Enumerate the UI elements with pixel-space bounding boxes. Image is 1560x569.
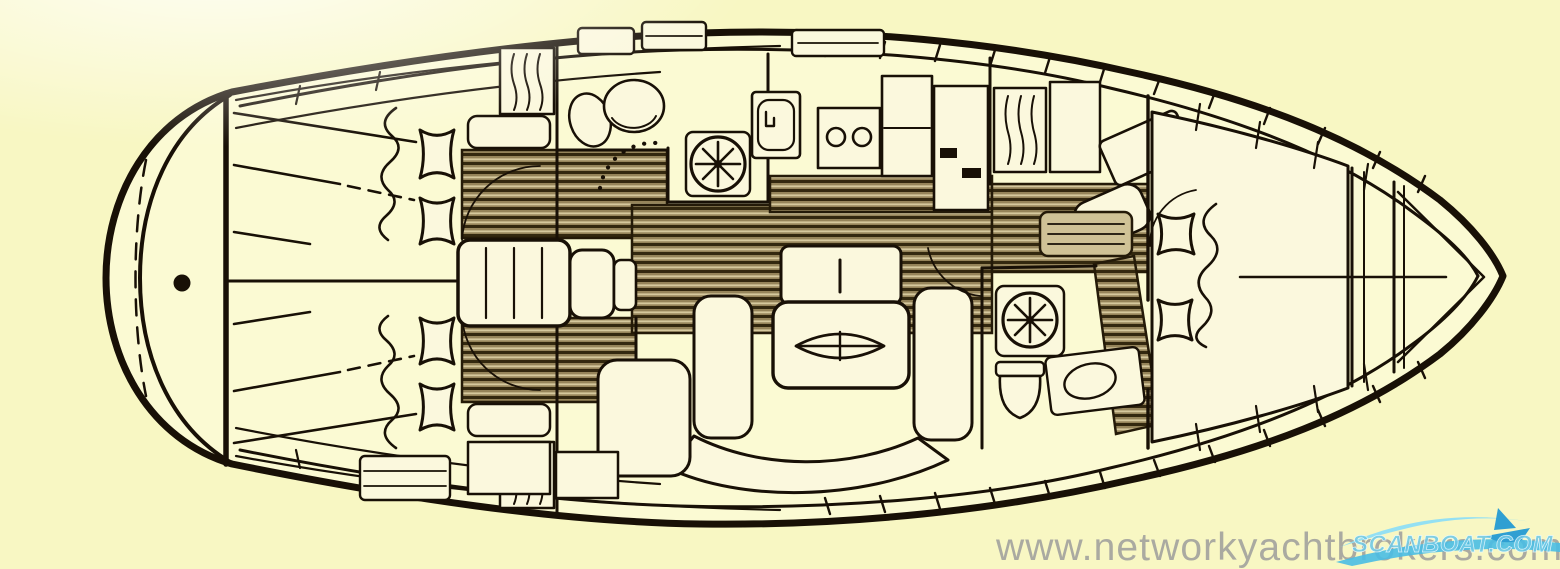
chart-table-top <box>1040 212 1132 256</box>
berth-cushion-icon <box>1158 300 1192 340</box>
shelf <box>468 116 550 148</box>
berth-cushion-icon <box>420 130 454 178</box>
shower-drain-icon <box>686 132 750 196</box>
deck-hatch <box>578 28 634 54</box>
steps-top <box>614 260 636 310</box>
locker-handle <box>962 168 981 178</box>
rudder-post-icon <box>174 275 191 292</box>
settee-port-arm <box>694 296 752 438</box>
stowage-locker <box>468 442 550 494</box>
toilet-icon <box>604 80 664 132</box>
sink-unit <box>752 92 800 158</box>
sink-icon <box>1045 346 1145 415</box>
galley-counter <box>882 76 932 176</box>
berth-cushion-icon <box>420 198 454 244</box>
saloon-table-icon <box>773 246 909 388</box>
steps-mid <box>570 250 614 318</box>
locker-handle <box>940 148 957 158</box>
berth-cushion-icon <box>1158 214 1194 254</box>
stove-burners-icon <box>818 108 880 168</box>
stowage-locker <box>556 452 618 498</box>
yacht-floor-plan: www.networkyachtbrokers.com SCANBOAT.COM <box>0 0 1560 569</box>
scanboat-logo: SCANBOAT.COM <box>1336 508 1560 566</box>
settee-stbd-arm <box>914 288 972 440</box>
shelf <box>468 404 550 436</box>
logo-text: SCANBOAT.COM <box>1352 531 1554 558</box>
aft-deck-box <box>360 456 450 500</box>
companionway-steps <box>458 240 636 326</box>
scanned-yacht-layout-page: www.networkyachtbrokers.com SCANBOAT.COM <box>0 0 1560 569</box>
nav-cabinet <box>1050 82 1100 172</box>
berth-cushion-icon <box>420 384 454 430</box>
shower-drain-icon <box>996 286 1064 356</box>
berth-cushion-icon <box>420 318 454 364</box>
